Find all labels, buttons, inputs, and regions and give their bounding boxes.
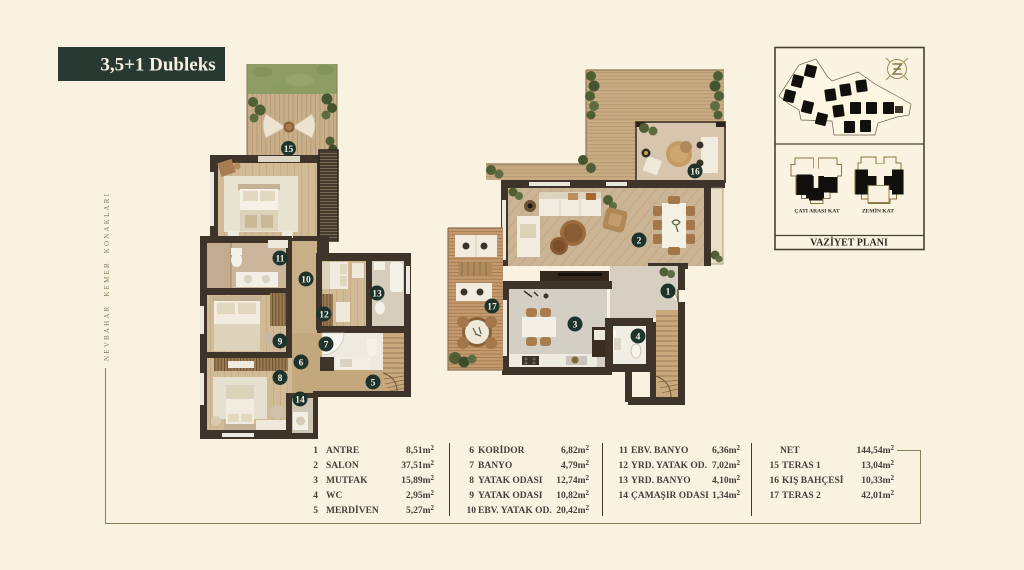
svg-text:16: 16 xyxy=(690,168,700,178)
svg-text:6: 6 xyxy=(299,359,304,369)
svg-text:15: 15 xyxy=(770,461,780,471)
svg-text:TERAS 2: TERAS 2 xyxy=(782,491,821,501)
svg-text:9: 9 xyxy=(278,338,283,348)
svg-text:3: 3 xyxy=(313,476,318,486)
svg-text:12,74m2: 12,74m2 xyxy=(556,474,589,486)
svg-text:13,04m2: 13,04m2 xyxy=(861,459,894,471)
svg-text:13: 13 xyxy=(619,476,629,486)
svg-text:14: 14 xyxy=(619,491,629,501)
svg-text:1: 1 xyxy=(666,288,671,298)
svg-text:37,51m2: 37,51m2 xyxy=(401,459,434,471)
svg-text:2: 2 xyxy=(313,461,318,471)
svg-text:EBV. YATAK OD.: EBV. YATAK OD. xyxy=(478,506,552,516)
svg-text:12: 12 xyxy=(319,311,329,321)
svg-text:8,51m2: 8,51m2 xyxy=(406,444,435,456)
svg-text:13: 13 xyxy=(372,290,382,300)
svg-text:14: 14 xyxy=(295,396,305,406)
svg-text:8: 8 xyxy=(278,374,283,384)
svg-text:6,36m2: 6,36m2 xyxy=(712,444,741,456)
svg-text:7,02m2: 7,02m2 xyxy=(712,459,741,471)
svg-text:1: 1 xyxy=(313,446,318,456)
svg-text:YATAK ODASI: YATAK ODASI xyxy=(478,491,543,501)
svg-text:1,34m2: 1,34m2 xyxy=(712,489,741,501)
svg-text:3: 3 xyxy=(573,321,578,331)
svg-text:4,79m2: 4,79m2 xyxy=(561,459,590,471)
svg-text:NEVBAHAR KEMER KONAKLARI: NEVBAHAR KEMER KONAKLARI xyxy=(103,192,111,361)
svg-text:MUTFAK: MUTFAK xyxy=(326,476,368,486)
svg-text:SALON: SALON xyxy=(326,461,359,471)
svg-text:12: 12 xyxy=(619,461,629,471)
svg-text:YRD. YATAK OD.: YRD. YATAK OD. xyxy=(631,461,707,471)
svg-text:10,33m2: 10,33m2 xyxy=(861,474,894,486)
svg-text:TERAS 1: TERAS 1 xyxy=(782,461,821,471)
svg-text:4,10m2: 4,10m2 xyxy=(712,474,741,486)
svg-text:VAZİYET PLANI: VAZİYET PLANI xyxy=(810,237,888,249)
svg-text:5: 5 xyxy=(371,379,376,389)
svg-text:7: 7 xyxy=(469,461,474,471)
svg-text:16: 16 xyxy=(770,476,780,486)
svg-text:144,54m2: 144,54m2 xyxy=(856,444,894,456)
svg-text:ZEMİN KAT: ZEMİN KAT xyxy=(862,208,894,215)
svg-text:10: 10 xyxy=(467,506,477,516)
svg-text:ÇAMAŞIR ODASI: ÇAMAŞIR ODASI xyxy=(631,491,709,501)
svg-text:KIŞ BAHÇESİ: KIŞ BAHÇESİ xyxy=(782,474,844,486)
svg-text:EBV. BANYO: EBV. BANYO xyxy=(631,446,688,456)
svg-text:10,82m2: 10,82m2 xyxy=(556,489,589,501)
svg-text:7: 7 xyxy=(324,341,329,351)
svg-text:17: 17 xyxy=(770,491,780,501)
svg-text:ÇATI ARASI KAT: ÇATI ARASI KAT xyxy=(794,209,839,215)
svg-text:4: 4 xyxy=(313,491,318,501)
svg-text:11: 11 xyxy=(276,255,285,265)
svg-text:YRD. BANYO: YRD. BANYO xyxy=(631,476,691,486)
svg-text:YATAK ODASI: YATAK ODASI xyxy=(478,476,543,486)
svg-text:42,01m2: 42,01m2 xyxy=(861,489,894,501)
svg-text:WC: WC xyxy=(326,491,343,501)
svg-text:15,89m2: 15,89m2 xyxy=(401,474,434,486)
svg-text:6: 6 xyxy=(469,446,474,456)
svg-text:9: 9 xyxy=(469,491,474,501)
svg-text:10: 10 xyxy=(301,276,311,286)
svg-text:ANTRE: ANTRE xyxy=(326,446,359,456)
svg-text:2: 2 xyxy=(637,237,642,247)
svg-text:3,5+1 Dubleks: 3,5+1 Dubleks xyxy=(100,55,215,76)
svg-text:NET: NET xyxy=(780,446,800,456)
svg-text:8: 8 xyxy=(469,476,474,486)
svg-text:15: 15 xyxy=(284,145,294,155)
svg-text:MERDİVEN: MERDİVEN xyxy=(326,504,379,516)
svg-text:17: 17 xyxy=(487,303,497,313)
svg-text:KORİDOR: KORİDOR xyxy=(478,444,525,456)
svg-text:2,95m2: 2,95m2 xyxy=(406,489,435,501)
svg-text:11: 11 xyxy=(619,446,628,456)
svg-text:5: 5 xyxy=(313,506,318,516)
svg-text:4: 4 xyxy=(636,333,641,343)
svg-text:BANYO: BANYO xyxy=(478,461,512,471)
svg-text:20,42m2: 20,42m2 xyxy=(556,504,589,516)
svg-text:6,82m2: 6,82m2 xyxy=(561,444,590,456)
svg-text:5,27m2: 5,27m2 xyxy=(406,504,435,516)
